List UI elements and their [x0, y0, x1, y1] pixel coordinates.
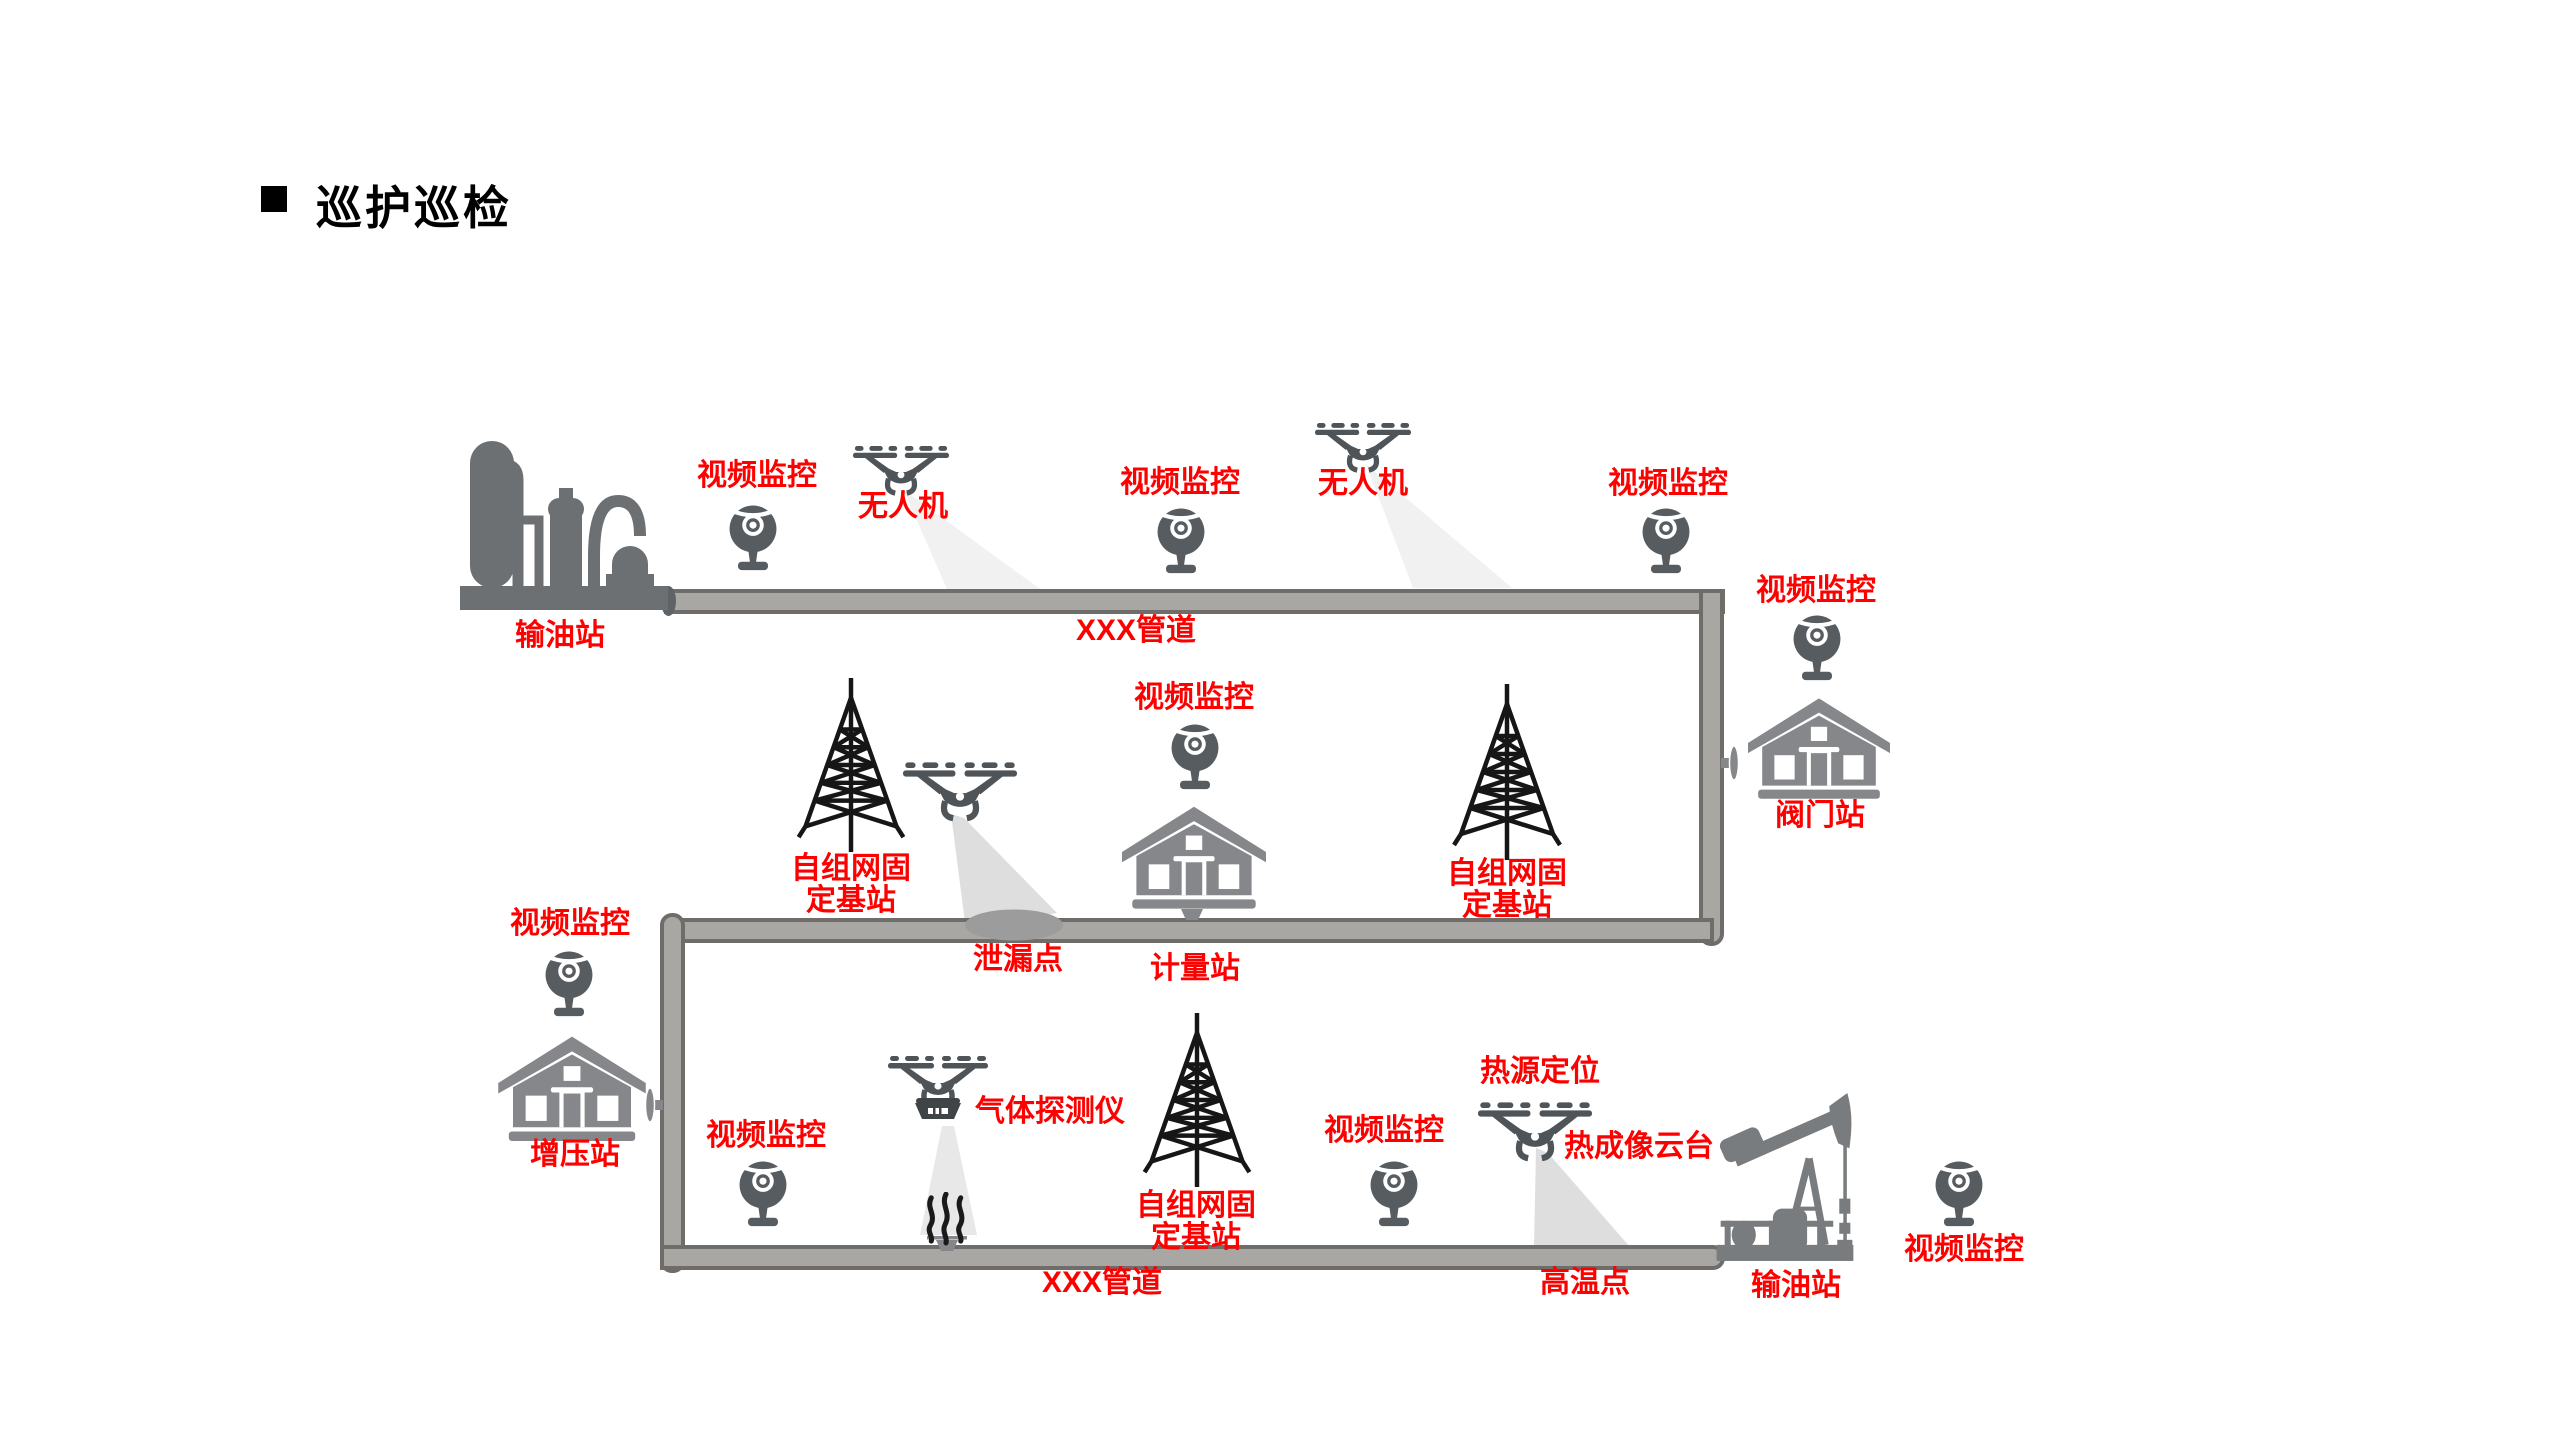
thermal-imaging-gimbal-label: 热成像云台: [1564, 1131, 1714, 1163]
camera-icon: [1151, 498, 1211, 577]
oil-station-label: 输油站: [1751, 1270, 1841, 1302]
high-temp-point-label: 高温点: [1540, 1267, 1630, 1299]
video-surveillance-label: 视频监控: [1608, 468, 1728, 500]
adhoc-base-station-label: 自组网固定基站: [785, 853, 917, 916]
leak-point-label: 泄漏点: [973, 944, 1063, 976]
leak-spot-ellipse: [963, 908, 1065, 942]
camera-icon: [1787, 605, 1847, 684]
camera-icon: [1636, 498, 1696, 577]
camera-icon: [1165, 714, 1225, 793]
patrol-inspection-diagram: 巡护巡检 输油站 视频监控 视频监控 视频监控 无人机 无人机 XXX管道 视频…: [0, 0, 2560, 1440]
pipeline-middle-segment: [670, 918, 1714, 943]
booster-station-label: 增压站: [530, 1139, 620, 1171]
station-building-icon: [1748, 686, 1890, 800]
video-surveillance-label: 视频监控: [1904, 1234, 2024, 1266]
video-surveillance-label: 视频监控: [510, 908, 630, 940]
station-building-icon: [1122, 794, 1266, 910]
gas-detector-label: 气体探测仪: [975, 1096, 1125, 1128]
camera-icon: [723, 495, 783, 574]
drone-icon: [853, 446, 949, 496]
adhoc-base-station-label: 自组网固定基站: [1130, 1190, 1262, 1253]
pipeline-top-segment: [664, 589, 1725, 614]
video-surveillance-label: 视频监控: [1756, 575, 1876, 607]
station-building-icon: [498, 1024, 646, 1142]
smoke-icon: [923, 1192, 969, 1246]
camera-icon: [1929, 1151, 1989, 1230]
drone-spotlight-beams: [0, 0, 2560, 1440]
valve-station-label: 阀门站: [1775, 800, 1865, 832]
adhoc-base-station-label: 自组网固定基站: [1441, 858, 1573, 921]
oil-refinery-icon: [460, 438, 672, 610]
camera-icon: [733, 1151, 793, 1230]
video-surveillance-label: 视频监控: [1120, 467, 1240, 499]
video-surveillance-label: 视频监控: [706, 1120, 826, 1152]
gas-detector-device-icon: [913, 1098, 963, 1120]
pipeline-left-vertical-segment: [660, 913, 685, 1273]
video-surveillance-label: 视频监控: [1134, 682, 1254, 714]
video-surveillance-label: 视频监控: [697, 460, 817, 492]
camera-icon: [1364, 1151, 1424, 1230]
adhoc-base-tower-icon: [1451, 684, 1563, 864]
pumpjack-icon: [1716, 1082, 1858, 1268]
pipe-valve-icon: [1721, 744, 1743, 782]
video-surveillance-label: 视频监控: [1324, 1115, 1444, 1147]
drone-icon: [1315, 423, 1411, 473]
pipeline-label: XXX管道: [1042, 1267, 1162, 1299]
adhoc-base-tower-icon: [1141, 1013, 1253, 1191]
drone-icon: [903, 762, 1017, 822]
camera-icon: [539, 941, 599, 1020]
drone-label: 无人机: [858, 491, 948, 523]
pipeline-label: XXX管道: [1076, 615, 1196, 647]
drone-label: 无人机: [1318, 468, 1408, 500]
adhoc-base-tower-icon: [795, 678, 907, 856]
oil-station-label: 输油站: [515, 620, 605, 652]
heat-source-location-label: 热源定位: [1480, 1056, 1600, 1088]
metering-station-label: 计量站: [1150, 953, 1240, 985]
